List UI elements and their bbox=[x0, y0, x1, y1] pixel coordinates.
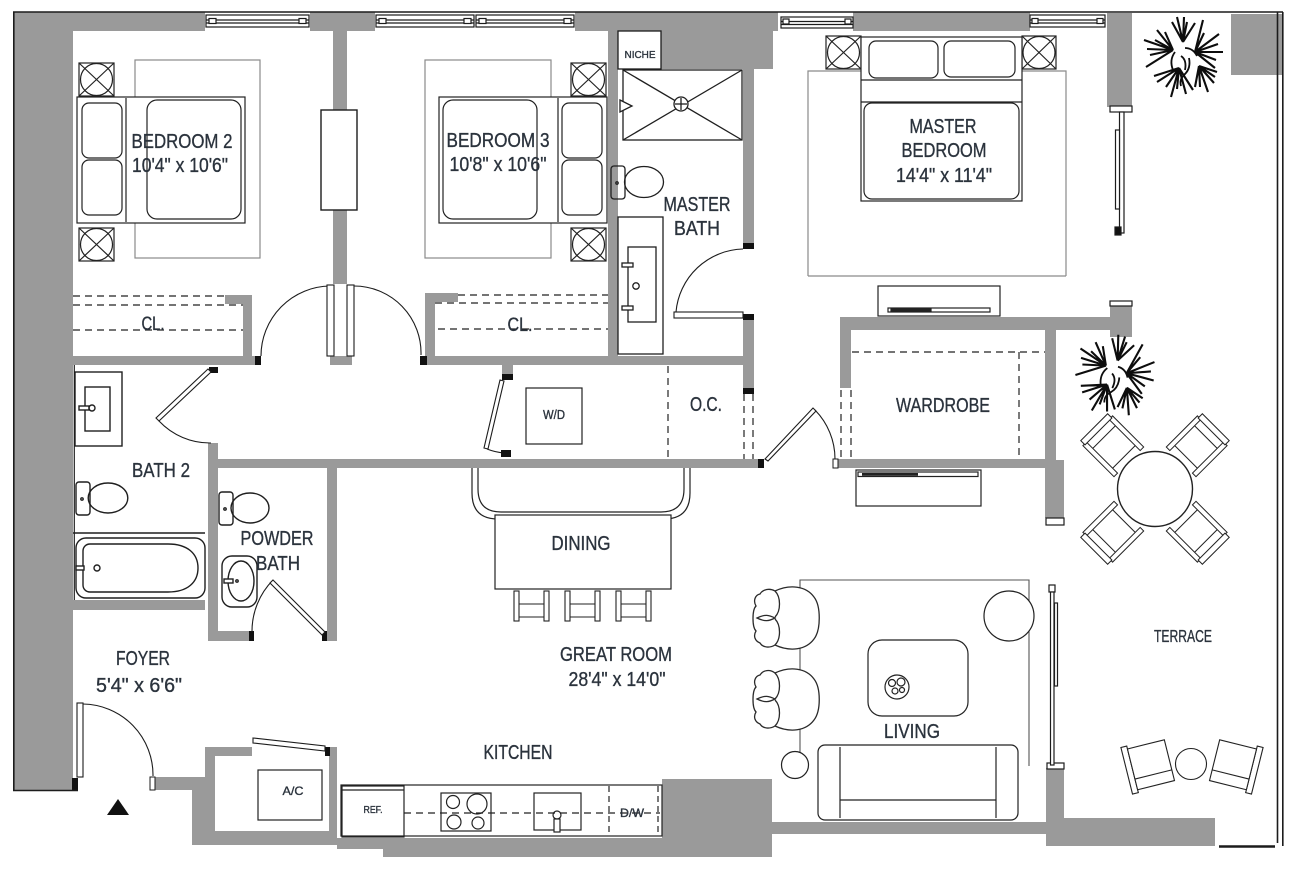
svg-text:10'4" x 10'6": 10'4" x 10'6" bbox=[132, 154, 228, 177]
svg-text:A/C: A/C bbox=[283, 784, 304, 798]
svg-text:DINING: DINING bbox=[552, 533, 611, 555]
svg-text:WARDROBE: WARDROBE bbox=[896, 395, 990, 417]
svg-text:LIVING: LIVING bbox=[884, 720, 940, 743]
svg-text:NICHE: NICHE bbox=[625, 49, 656, 61]
svg-text:REF.: REF. bbox=[364, 805, 383, 816]
svg-text:KITCHEN: KITCHEN bbox=[484, 741, 553, 764]
svg-text:FOYER: FOYER bbox=[116, 648, 170, 670]
svg-text:W/D: W/D bbox=[543, 408, 565, 422]
svg-text:GREAT ROOM: GREAT ROOM bbox=[560, 644, 672, 666]
svg-text:BATH 2: BATH 2 bbox=[132, 460, 190, 482]
svg-text:BEDROOM: BEDROOM bbox=[902, 140, 987, 162]
svg-text:CL.: CL. bbox=[508, 314, 533, 336]
svg-text:10'8" x 10'6": 10'8" x 10'6" bbox=[450, 153, 547, 176]
svg-text:5'4" x 6'6": 5'4" x 6'6" bbox=[96, 675, 182, 697]
svg-text:28'4" x 14'0": 28'4" x 14'0" bbox=[569, 669, 666, 691]
svg-text:MASTER: MASTER bbox=[910, 116, 977, 138]
svg-text:MASTER: MASTER bbox=[664, 194, 731, 216]
svg-text:TERRACE: TERRACE bbox=[1154, 626, 1212, 646]
svg-text:CL.: CL. bbox=[142, 313, 165, 335]
svg-text:D/W: D/W bbox=[620, 806, 645, 820]
svg-text:BEDROOM 3: BEDROOM 3 bbox=[447, 129, 550, 152]
svg-text:BATH: BATH bbox=[256, 553, 300, 575]
svg-text:BEDROOM 2: BEDROOM 2 bbox=[132, 130, 233, 153]
svg-text:14'4" x 11'4": 14'4" x 11'4" bbox=[896, 165, 992, 187]
svg-text:O.C.: O.C. bbox=[690, 394, 722, 416]
svg-text:BATH: BATH bbox=[674, 218, 720, 240]
svg-text:POWDER: POWDER bbox=[241, 528, 314, 550]
